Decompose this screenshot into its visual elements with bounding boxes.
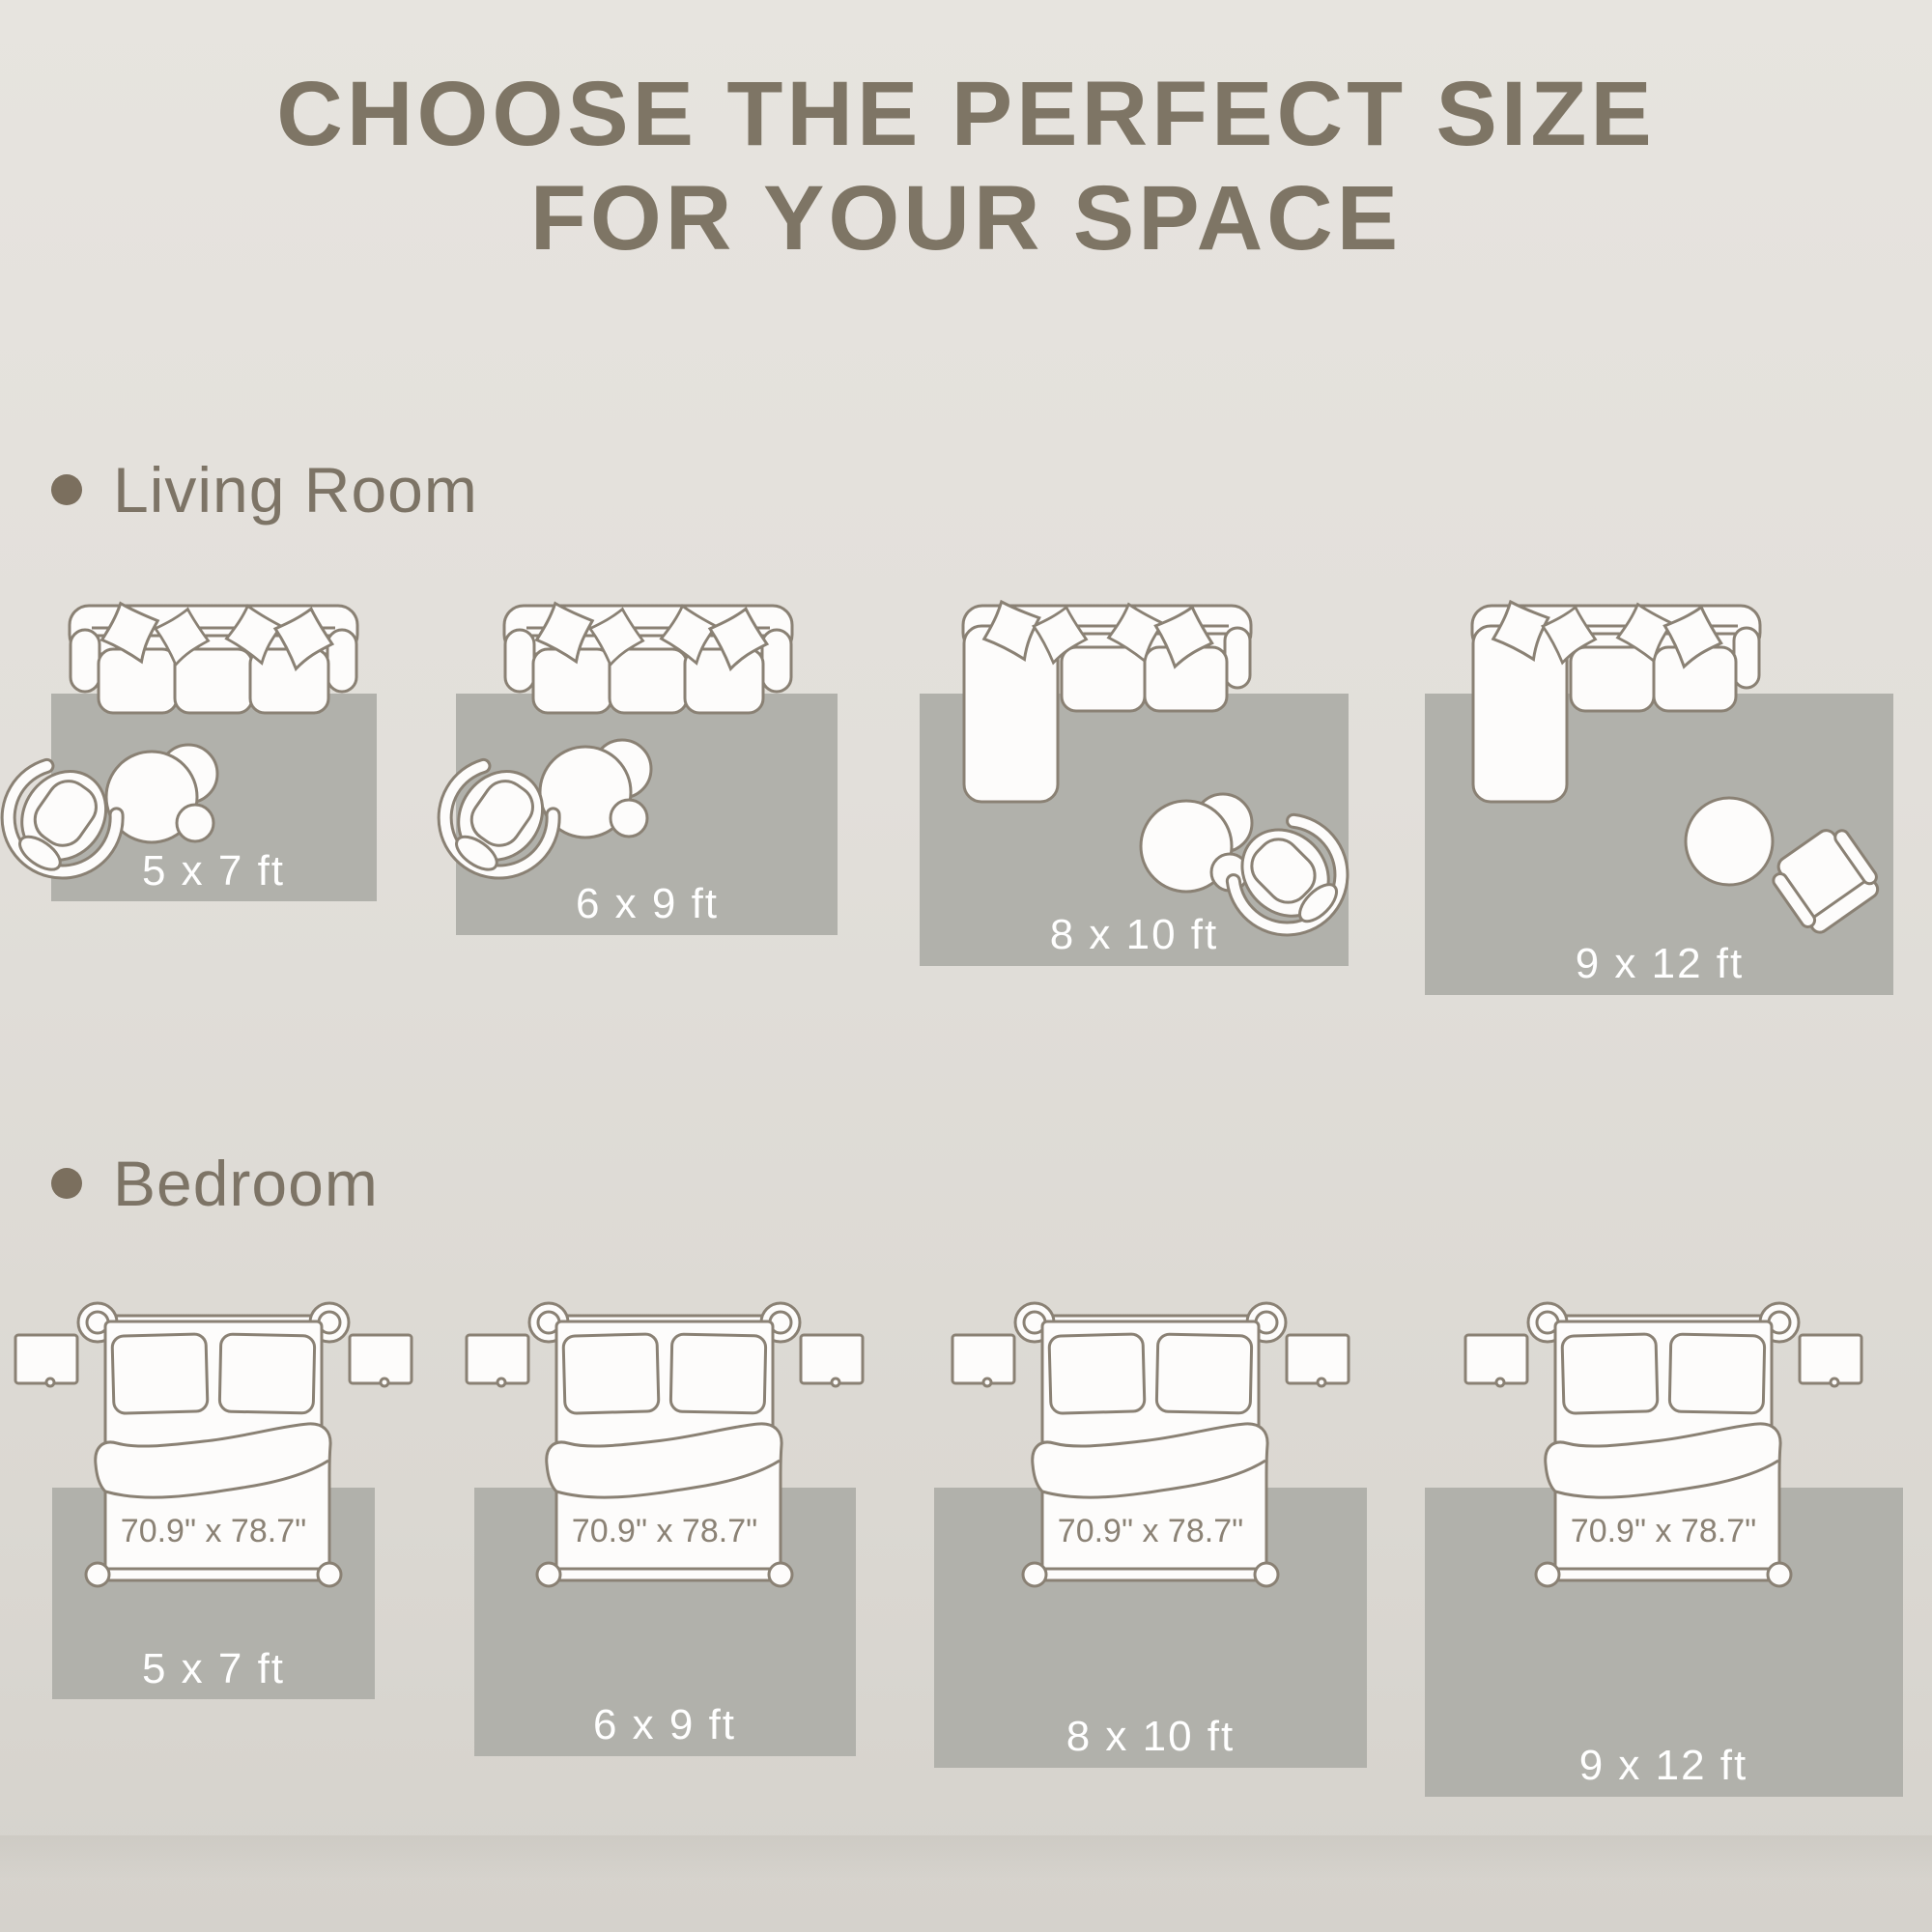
bed-dimension-label: 70.9" x 78.7" [572, 1513, 757, 1549]
page-title-line2: FOR YOUR SPACE [0, 166, 1932, 270]
bedroom-layout-5x7: 70.9" x 78.7" 5 x 7 ft [15, 1303, 412, 1699]
nightstand-icon [1465, 1335, 1527, 1386]
bedroom-size-row: 70.9" x 78.7" 5 x 7 ft 70.9" x 78.7" 6 x… [0, 1294, 1932, 1835]
bedroom-layout-6x9: 70.9" x 78.7" 6 x 9 ft [467, 1303, 863, 1756]
bedroom-layout-8x10: 70.9" x 78.7" 8 x 10 ft [934, 1303, 1367, 1768]
rug-size-label: 6 x 9 ft [593, 1701, 736, 1748]
rug-size-label: 8 x 10 ft [1050, 911, 1219, 958]
nightstand-icon [15, 1335, 77, 1386]
nightstand-icon [1287, 1335, 1349, 1386]
rug-size-guide-infographic: CHOOSE THE PERFECT SIZE FOR YOUR SPACE L… [0, 0, 1932, 1932]
living-room-layout-8x10: 8 x 10 ft [920, 591, 1364, 966]
living-room-layout-9x12: 9 x 12 ft [1425, 591, 1893, 995]
living-room-layout-5x7: 5 x 7 ft [0, 594, 377, 901]
sofa-icon [70, 594, 357, 713]
bed-dimension-label: 70.9" x 78.7" [1058, 1513, 1243, 1549]
nightstand-icon [467, 1335, 528, 1386]
floor-shadow [0, 1835, 1932, 1879]
section-header-bedroom: Bedroom [51, 1151, 379, 1215]
rug-size-label: 5 x 7 ft [142, 1645, 285, 1692]
bullet-icon [51, 1168, 82, 1199]
rug-size-label: 9 x 12 ft [1579, 1742, 1748, 1789]
rug-size-label: 6 x 9 ft [576, 880, 719, 927]
nightstand-icon [1800, 1335, 1861, 1386]
living-room-layout-6x9: 6 x 9 ft [424, 594, 838, 935]
rug-size-label: 5 x 7 ft [142, 847, 285, 895]
sofa-icon [504, 594, 792, 713]
nightstand-icon [350, 1335, 412, 1386]
bed-dimension-label: 70.9" x 78.7" [121, 1513, 306, 1549]
section-label-bedroom: Bedroom [113, 1151, 379, 1215]
rug-size-label: 8 x 10 ft [1066, 1713, 1236, 1760]
bedroom-layout-9x12: 70.9" x 78.7" 9 x 12 ft [1425, 1303, 1903, 1797]
living-room-size-row: 5 x 7 ft 6 x 9 ft 8 x 10 ft 9 x 12 ft [0, 464, 1932, 1005]
nightstand-icon [801, 1335, 863, 1386]
bed-dimension-label: 70.9" x 78.7" [1571, 1513, 1756, 1549]
page-title: CHOOSE THE PERFECT SIZE FOR YOUR SPACE [0, 62, 1932, 271]
round-table-icon [1686, 798, 1773, 885]
nightstand-icon [952, 1335, 1014, 1386]
rug-size-label: 9 x 12 ft [1576, 940, 1745, 987]
page-title-line1: CHOOSE THE PERFECT SIZE [0, 62, 1932, 166]
